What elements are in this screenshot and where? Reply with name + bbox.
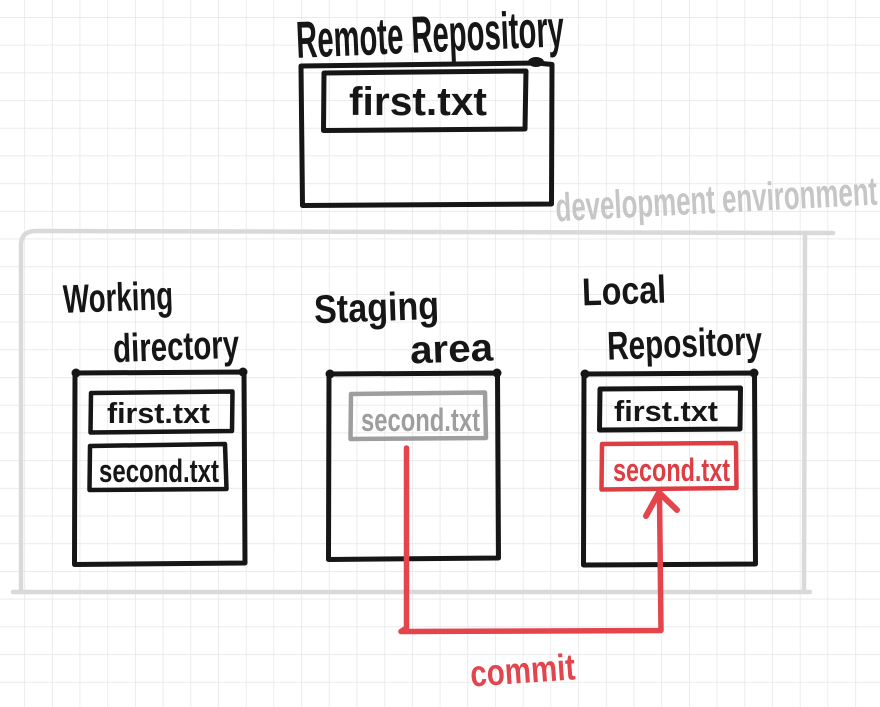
svg-text:directory: directory (112, 323, 240, 371)
svg-text:commit: commit (469, 646, 577, 694)
svg-text:Working: Working (62, 274, 173, 322)
svg-text:Remote Repository: Remote Repository (295, 0, 565, 70)
svg-text:Staging: Staging (313, 284, 439, 332)
svg-text:second.txt: second.txt (99, 453, 219, 489)
svg-text:Repository: Repository (606, 319, 763, 368)
svg-text:first.txt: first.txt (107, 398, 210, 430)
svg-text:area: area (409, 327, 494, 373)
svg-text:first.txt: first.txt (349, 80, 487, 124)
svg-text:second.txt: second.txt (361, 402, 480, 438)
svg-text:second.txt: second.txt (613, 452, 730, 488)
svg-text:Local: Local (581, 269, 666, 315)
svg-text:first.txt: first.txt (614, 396, 718, 428)
